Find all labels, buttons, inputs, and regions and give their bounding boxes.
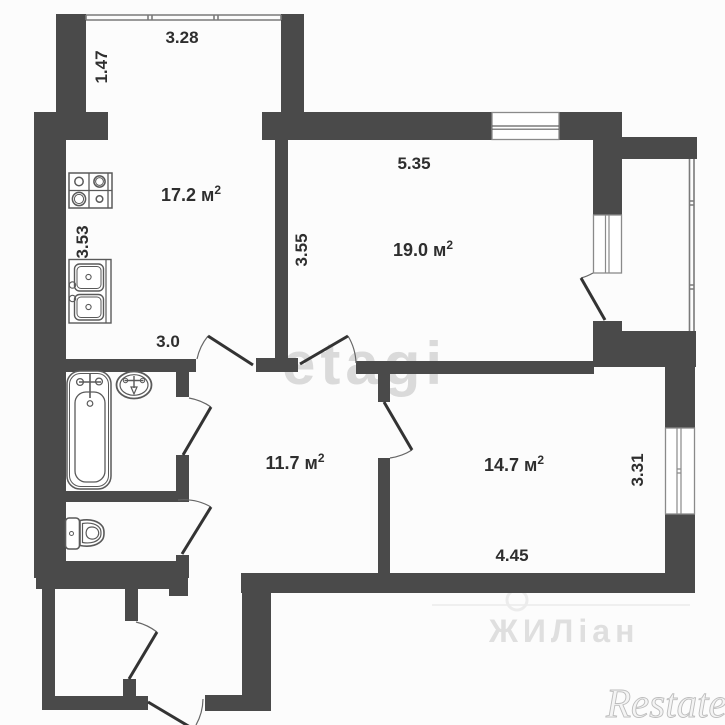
svg-text:3.28: 3.28 xyxy=(165,28,198,47)
svg-text:ЖИЛіан: ЖИЛіан xyxy=(488,613,639,649)
svg-text:1.47: 1.47 xyxy=(92,50,111,83)
svg-text:3.31: 3.31 xyxy=(628,453,647,486)
svg-text:11.7 м2: 11.7 м2 xyxy=(265,451,324,473)
svg-text:3.55: 3.55 xyxy=(292,233,311,266)
svg-text:3.53: 3.53 xyxy=(73,225,92,258)
svg-text:14.7 м2: 14.7 м2 xyxy=(484,453,544,475)
svg-text:Restate: Restate xyxy=(605,680,725,725)
svg-text:17.2 м2: 17.2 м2 xyxy=(161,183,221,205)
svg-text:5.35: 5.35 xyxy=(397,154,430,173)
svg-text:3.0: 3.0 xyxy=(156,332,180,351)
svg-text:4.45: 4.45 xyxy=(495,546,528,565)
svg-text:19.0 м2: 19.0 м2 xyxy=(393,238,453,260)
